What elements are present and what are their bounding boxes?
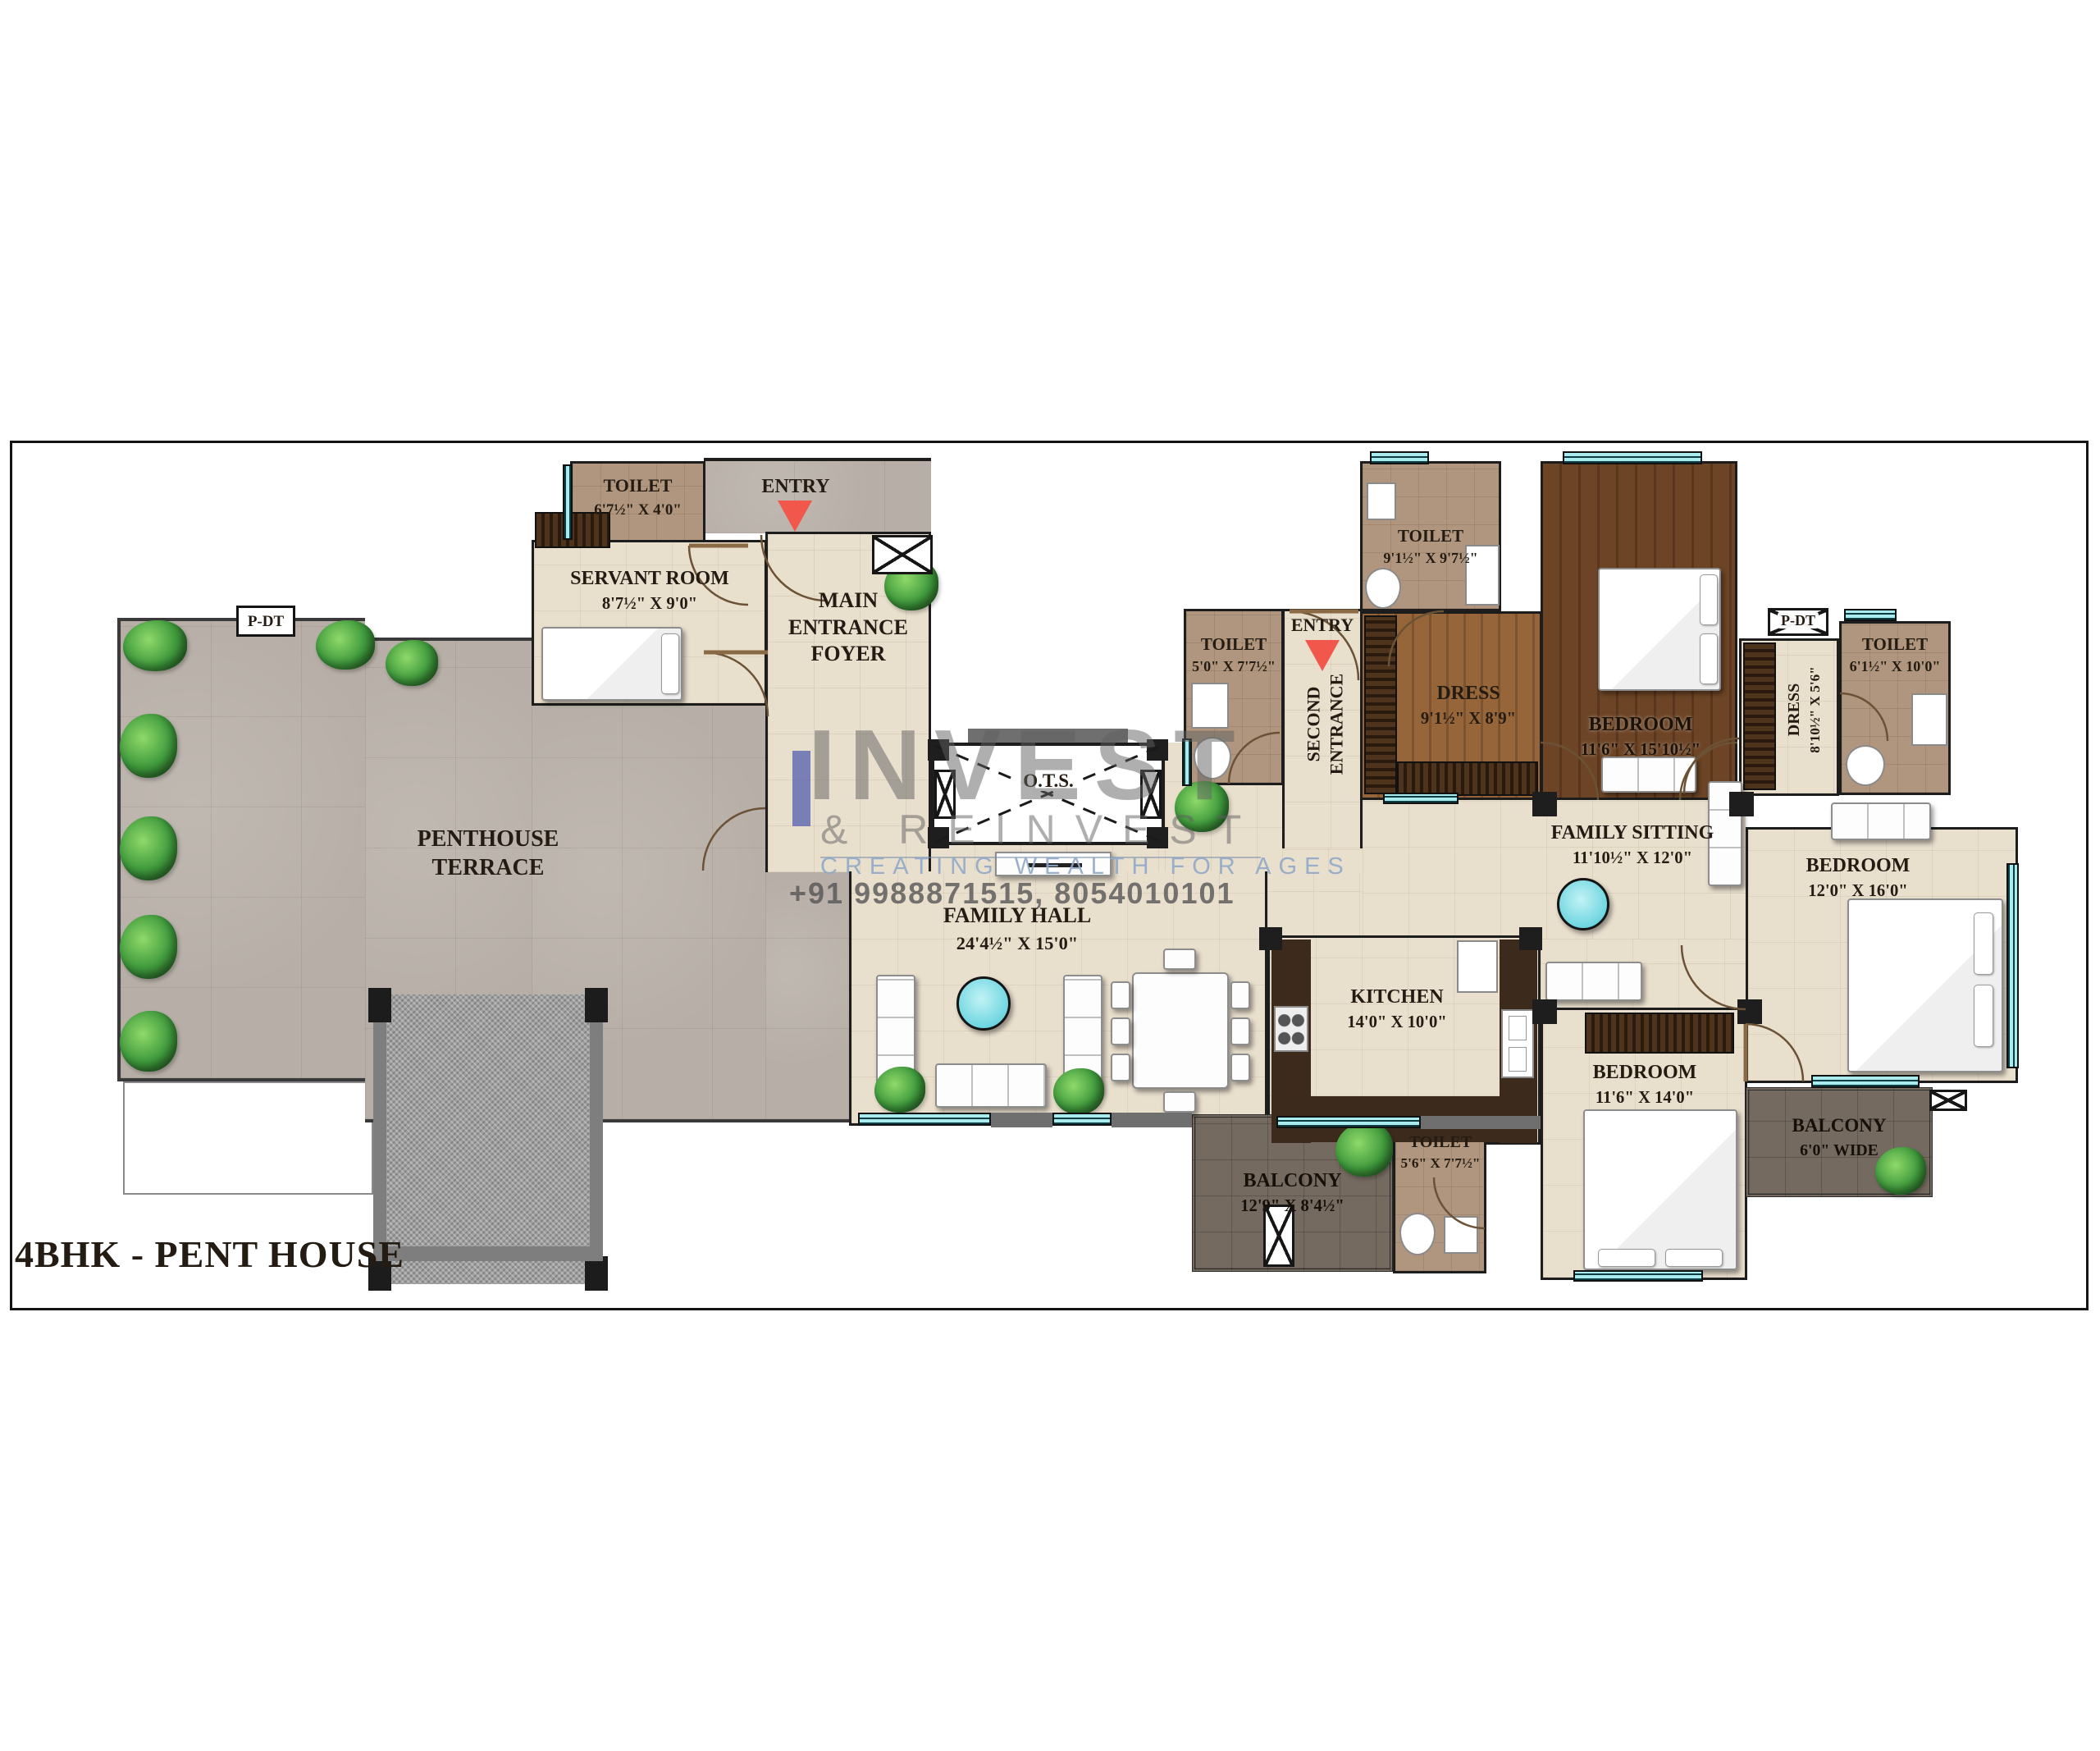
pdt-label-terrace: P-DT [236,612,295,632]
floor-plan-canvas: PENTHOUSE TERRACE P-DT TOILET 6'7½" X 4'… [0,0,2100,1751]
toilet-61-label: TOILET 6'1½" X 10'0" [1839,633,1951,677]
second-entrance-label: SECOND ENTRANCE [1303,655,1348,794]
foyer-label: MAIN ENTRANCE FOYER [778,587,919,668]
servant-toilet-label: TOILET 6'7½" X 4'0" [570,474,705,519]
balcony-60-label: BALCONY 6'0" WIDE [1746,1114,1933,1162]
dress-91-label: DRESS 9'1½" X 8'9" [1395,681,1542,730]
toilet-50-label: TOILET 5'0" X 7'7½" [1184,633,1284,677]
bedroom-12x16-label: BEDROOM 12'0" X 16'0" [1764,853,1952,903]
entry-label-main: ENTRY [742,474,849,499]
entry-arrow-icon [778,501,812,532]
ots-cross-lines [935,746,1162,842]
entry-label-second: ENTRY [1282,614,1363,637]
terrace-label: PENTHOUSE TERRACE [373,825,603,882]
family-hall-label: FAMILY HALL 24'4½" X 15'0" [886,903,1148,956]
toilet-56-label: TOILET 5'6" X 7'7½" [1383,1132,1498,1173]
servant-room-label: SERVANT ROOM 8'7½" X 9'0" [551,566,748,615]
family-sitting-label: FAMILY SITTING 11'10½" X 12'0" [1501,821,1764,870]
toilet-91-label: TOILET 9'1½" X 9'7½" [1360,525,1501,569]
dress-810-label: DRESS 8'10½" X 5'6" [1784,648,1825,771]
pdt-label-right: P-DT [1768,611,1828,630]
kitchen-label: KITCHEN 14'0" X 10'0" [1311,985,1483,1034]
ots-label: O.T.S. [999,770,1098,793]
page-title: 4BHK - PENT HOUSE [15,1232,404,1276]
bedroom-master-label: BEDROOM 11'6" X 15'10½" [1550,712,1731,761]
balcony-129-label: BALCONY 12'9" X 8'4½" [1192,1168,1393,1218]
bedroom-11x14-label: BEDROOM 11'6" X 14'0" [1550,1060,1739,1109]
